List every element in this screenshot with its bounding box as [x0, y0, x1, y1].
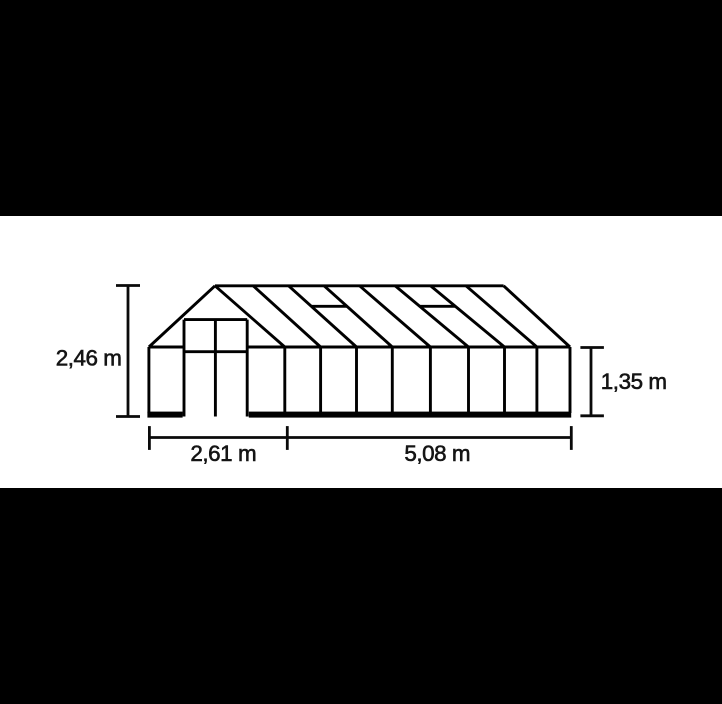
- svg-text:2,46 m: 2,46 m: [56, 345, 122, 370]
- svg-text:5,08 m: 5,08 m: [404, 441, 470, 466]
- svg-text:1,35 m: 1,35 m: [601, 369, 667, 394]
- svg-text:2,61 m: 2,61 m: [190, 441, 256, 466]
